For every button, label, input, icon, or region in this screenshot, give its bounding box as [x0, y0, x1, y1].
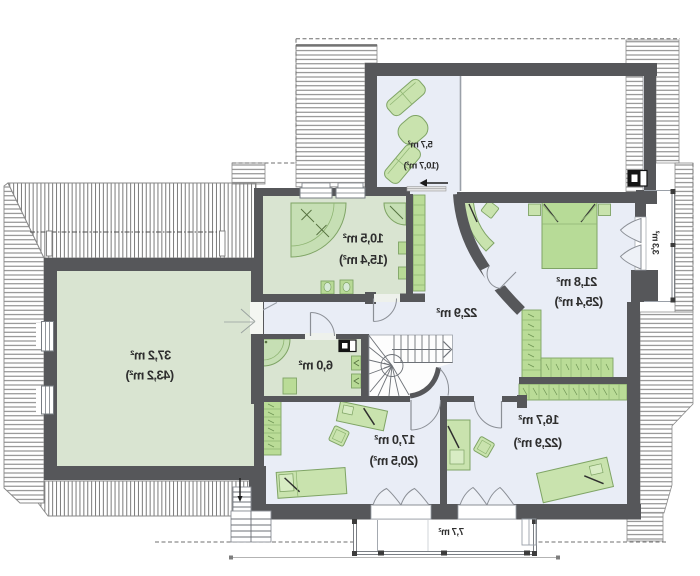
svg-text:(15,4 m²): (15,4 m²) [339, 252, 387, 267]
svg-text:10,5 m²: 10,5 m² [343, 231, 384, 246]
svg-text:3,3 m²: 3,3 m² [651, 231, 661, 255]
svg-text:21,8 m²: 21,8 m² [556, 274, 597, 289]
svg-text:(43,2 m²): (43,2 m²) [126, 368, 174, 383]
svg-text:16,7 m²: 16,7 m² [518, 412, 559, 427]
svg-text:(10,7 m²): (10,7 m²) [404, 161, 439, 172]
svg-text:22,9 m²: 22,9 m² [436, 305, 477, 320]
svg-text:17,0 m²: 17,0 m² [374, 432, 415, 447]
svg-text:(20,5 m²): (20,5 m²) [370, 453, 418, 468]
svg-text:6,0 m²: 6,0 m² [299, 358, 333, 373]
svg-text:5,7 m²: 5,7 m² [408, 140, 433, 151]
svg-text:(22,9 m²): (22,9 m²) [514, 435, 562, 450]
svg-text:7,7 m²: 7,7 m² [438, 527, 465, 538]
svg-text:(25,4 m²): (25,4 m²) [555, 294, 603, 309]
svg-text:37,2 m²: 37,2 m² [130, 348, 171, 363]
